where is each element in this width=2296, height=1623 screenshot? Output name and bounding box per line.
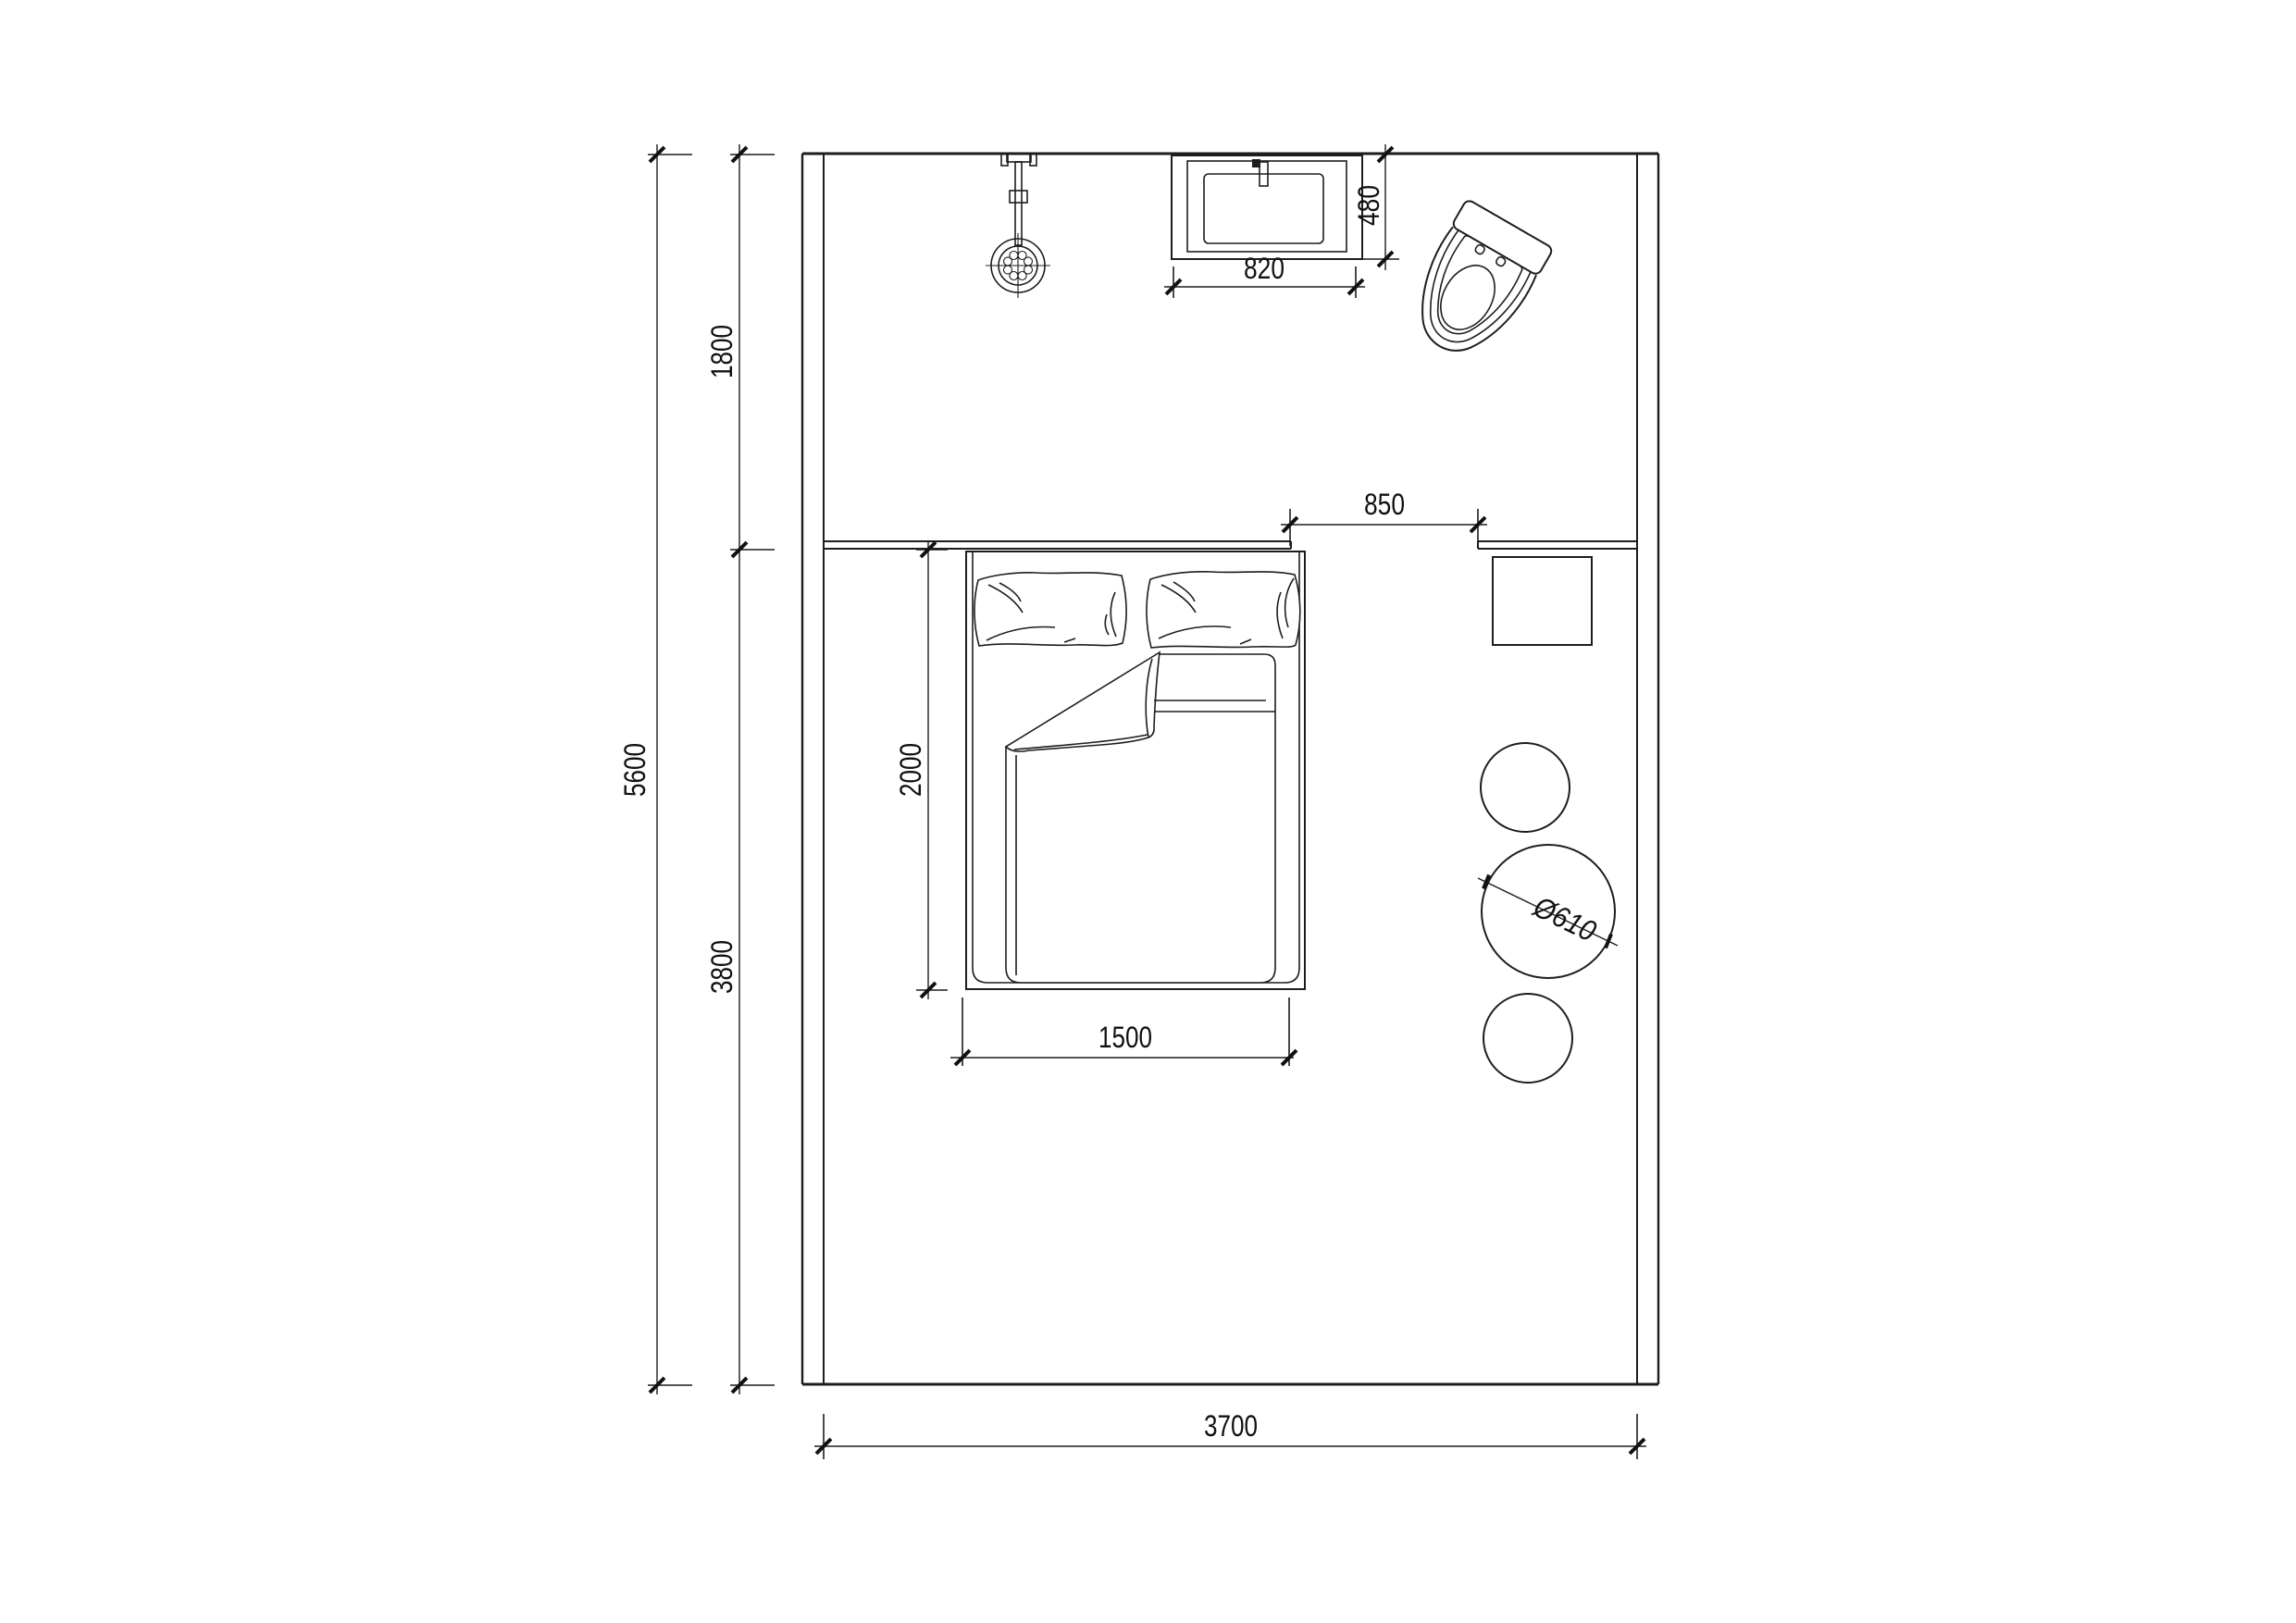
side-table [1493,557,1592,645]
dim-label-1500: 1500 [1098,1021,1152,1054]
shower-head [986,154,1050,298]
pillow-right [1147,572,1300,648]
basin-bowl [1204,174,1323,243]
shower-arm [1015,162,1022,245]
dim-label-1800: 1800 [705,325,738,378]
toilet-rim [1408,229,1532,360]
toilet-seat [1419,234,1524,349]
dim-passage: 850 [1281,488,1487,546]
shower-arm-collar [1010,191,1027,203]
dim-label-5600: 5600 [618,743,652,797]
dim-overall-width: 3700 [814,1409,1646,1459]
ledge-right [1478,541,1637,549]
dim-zone-chain: 1800 3800 [705,144,775,1394]
pillow-left [974,573,1126,646]
toilet-bowl-inner [1430,255,1506,339]
dim-label-3800: 3800 [705,940,738,994]
dim-overall-depth: 5600 [618,144,692,1394]
dim-label-diameter-610: Ø610 [1528,889,1602,948]
floor-plan-drawing: 5600 1800 3800 2000 1500 3700 [0,0,2296,1623]
washbasin [1172,155,1362,259]
stool-top [1481,743,1570,832]
dim-bed-width: 1500 [950,997,1297,1066]
double-bed [966,551,1305,989]
dim-bed-length: 2000 [894,540,948,999]
dim-label-2000: 2000 [894,743,927,797]
dim-basin-depth: 480 [1352,144,1399,270]
dim-label-820: 820 [1244,252,1285,285]
ledge-left [824,541,1291,549]
toilet-tank [1451,199,1554,276]
dim-label-850: 850 [1364,488,1405,521]
stool-bottom [1483,994,1572,1083]
dim-label-3700: 3700 [1204,1409,1258,1443]
floor-plan-page: 5600 1800 3800 2000 1500 3700 [0,0,2296,1623]
dim-table-diameter: Ø610 [1478,875,1618,948]
toilet [1396,199,1554,371]
dim-label-480: 480 [1352,185,1385,226]
